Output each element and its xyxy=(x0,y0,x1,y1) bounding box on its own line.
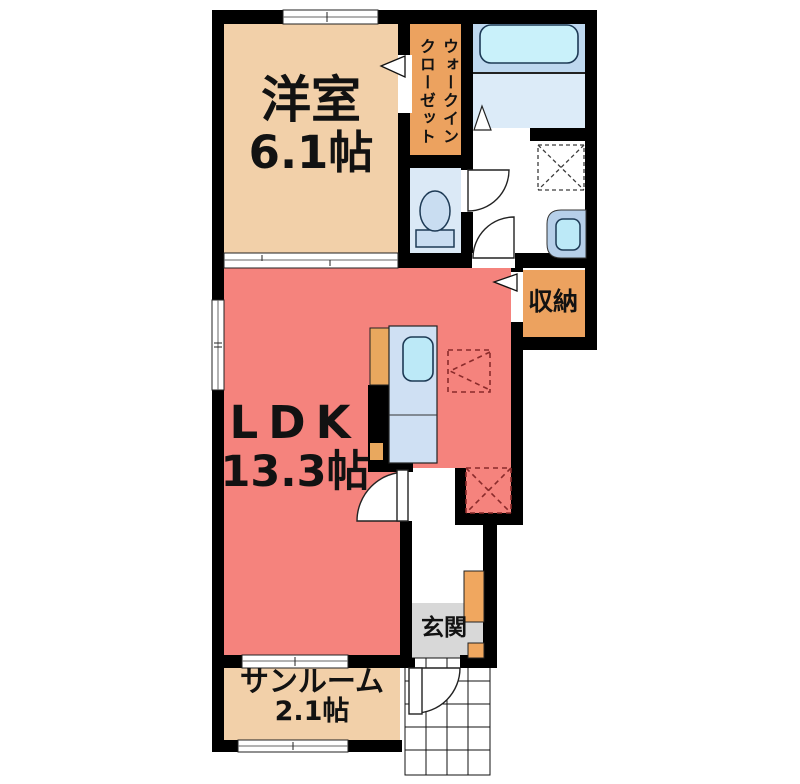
ldk-size: 13.3帖 xyxy=(200,448,390,496)
washbasin-icon xyxy=(547,210,586,258)
shoe-cabinet-small-icon xyxy=(468,643,484,658)
bathtub-icon xyxy=(480,25,578,63)
walk-in-closet-line2: クローゼット xyxy=(415,30,438,154)
storage-label: 収納 xyxy=(517,288,589,316)
sunroom-label: サンルーム 2.1帖 xyxy=(224,665,400,728)
sliding-partition-bedroom-ldk xyxy=(224,253,398,268)
window-top xyxy=(283,10,378,24)
window-sunroom-bottom xyxy=(238,740,348,752)
western-room-name: 洋室 xyxy=(224,72,398,128)
entrance-name: 玄関 xyxy=(410,616,478,642)
walk-in-closet-label: ウォークイン クローゼット xyxy=(411,30,461,154)
western-room-label: 洋室 6.1帖 xyxy=(224,72,398,178)
entrance-label: 玄関 xyxy=(410,616,478,642)
kitchen-cabinet-icon xyxy=(370,328,389,385)
ldk-name: LDK xyxy=(200,398,390,448)
ldk-label: LDK 13.3帖 xyxy=(200,398,390,497)
kitchen-sink-icon xyxy=(403,337,433,381)
floorplan-drawing xyxy=(0,0,800,784)
shoe-cabinet-icon xyxy=(464,571,484,622)
floorplan-canvas: 洋室 6.1帖 ウォークイン クローゼット 収納 LDK 13.3帖 サンルーム… xyxy=(0,0,800,784)
western-room-size: 6.1帖 xyxy=(224,128,398,178)
walk-in-closet-line1: ウォークイン xyxy=(438,30,461,154)
ldk-door-leaf xyxy=(397,470,408,521)
bathroom-floor xyxy=(473,73,585,128)
sunroom-size: 2.1帖 xyxy=(224,697,400,727)
hallway-floor-upper xyxy=(412,470,455,525)
window-ldk-left xyxy=(212,300,224,390)
entrance-door-leaf xyxy=(409,668,422,714)
sunroom-name: サンルーム xyxy=(224,665,400,697)
storage-name: 収納 xyxy=(517,288,589,316)
